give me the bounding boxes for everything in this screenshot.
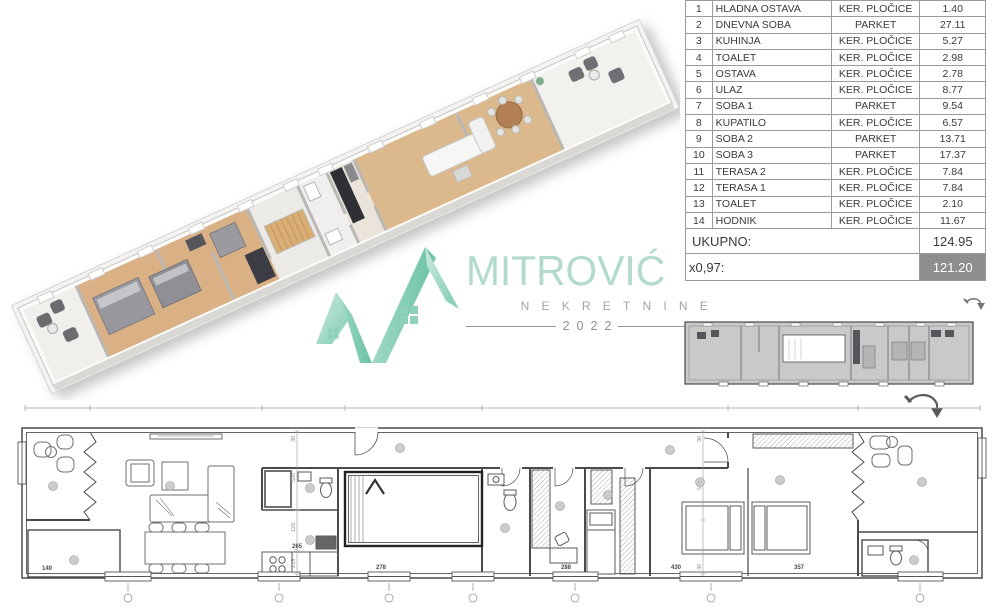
- thumbnail-stairwell: [783, 335, 845, 362]
- window-reference-markers: [124, 583, 924, 602]
- plan-thumbnail: [683, 294, 993, 398]
- svg-text:278: 278: [376, 565, 387, 571]
- table-row: 14HODNIKKER. PLOČICE11.67: [686, 212, 986, 228]
- entry-door: [355, 428, 378, 456]
- table-row: 3KUHINJAKER. PLOČICE5.27: [686, 33, 986, 49]
- table-row: 4TOALETKER. PLOČICE2.98: [686, 49, 986, 65]
- tv-unit: [150, 434, 222, 439]
- stairwell: [345, 472, 482, 546]
- table-factor-row: x0,97: 121.20: [686, 254, 986, 281]
- svg-text:125: 125: [291, 523, 297, 532]
- total-value: 124.95: [920, 229, 986, 254]
- logo-year: 2022: [563, 319, 619, 333]
- dining-set: [145, 523, 225, 573]
- logo-title: MITROVIĆ: [466, 250, 701, 292]
- table-row: 6ULAZKER. PLOČICE8.77: [686, 82, 986, 98]
- bathroom: [488, 474, 516, 511]
- terrace2-folding-partition: [852, 432, 864, 520]
- table-row: 9SOBA 2PARKET13.71: [686, 131, 986, 147]
- terrace1-folding-partition: [84, 432, 96, 520]
- plan-2d-view: 30 520 125 215 30 520 30 140 265 278 288…: [10, 390, 995, 612]
- rotate-arrow-small-icon: [964, 299, 985, 310]
- svg-text:30: 30: [697, 564, 703, 570]
- table-row: 11TERASA 2KER. PLOČICE7.84: [686, 163, 986, 179]
- table-row: 12TERASA 1KER. PLOČICE7.84: [686, 180, 986, 196]
- terrace1-furniture: [34, 435, 74, 472]
- table-row: 5OSTAVAKER. PLOČICE2.78: [686, 66, 986, 82]
- logo-house-mountain-icon: [308, 242, 460, 368]
- svg-text:30: 30: [697, 436, 703, 442]
- svg-text:30: 30: [291, 436, 297, 442]
- terrace2-furniture: [870, 436, 912, 467]
- svg-text:265: 265: [292, 544, 303, 550]
- thumbnail-strip: [685, 322, 973, 386]
- table-row: 8KUPATILOKER. PLOČICE6.57: [686, 115, 986, 131]
- table-row: 13TOALETKER. PLOČICE2.10: [686, 196, 986, 212]
- wardrobe-hatched: [532, 470, 550, 548]
- real-estate-floorplan-sheet: 1HLADNA OSTAVAKER. PLOČICE1.40 2DNEVNA S…: [0, 0, 1000, 612]
- wardrobe-top-hatched: [753, 434, 853, 448]
- svg-text:215: 215: [291, 559, 297, 568]
- total-label: UKUPNO:: [686, 229, 920, 254]
- svg-text:357: 357: [794, 565, 805, 571]
- kitchen-sink: [316, 536, 336, 549]
- toilet-room: [265, 471, 332, 507]
- svg-text:430: 430: [671, 565, 682, 571]
- factor-label: x0,97:: [686, 254, 920, 281]
- bedroom2: [587, 470, 635, 574]
- svg-text:520: 520: [291, 473, 297, 482]
- logo-subtitle: NEKRETNINE: [466, 299, 720, 313]
- kitchen: [262, 536, 338, 576]
- svg-text:288: 288: [561, 565, 572, 571]
- bottom-windows: [105, 572, 943, 602]
- bedroom3: [682, 434, 853, 554]
- agency-logo: MITROVIĆ NEKRETNINE 2022: [308, 242, 708, 368]
- table-row: 2DNEVNA SOBAPARKET27.11: [686, 17, 986, 33]
- table-total-row: UKUPNO: 124.95: [686, 229, 986, 254]
- living-room-furniture: [126, 434, 234, 573]
- factor-value-highlighted: 121.20: [920, 254, 986, 281]
- desk: [550, 548, 577, 563]
- rotate-arrow-large-icon: [905, 395, 943, 418]
- tall-wardrobe-hatched: [620, 478, 635, 574]
- dimension-line-top: [25, 405, 980, 411]
- table-row: 1HLADNA OSTAVAKER. PLOČICE1.40: [686, 1, 986, 17]
- table-row: 7SOBA 1PARKET9.54: [686, 98, 986, 114]
- bedroom1: [532, 470, 577, 563]
- year-dash-left: [466, 326, 556, 327]
- svg-text:140: 140: [42, 566, 53, 572]
- logo-year-row: 2022: [466, 319, 708, 333]
- table-row: 10SOBA 3PARKET17.37: [686, 147, 986, 163]
- toilet2-fixtures: [868, 546, 902, 565]
- desk-chair: [554, 532, 569, 546]
- area-table: 1HLADNA OSTAVAKER. PLOČICE1.40 2DNEVNA S…: [685, 0, 986, 281]
